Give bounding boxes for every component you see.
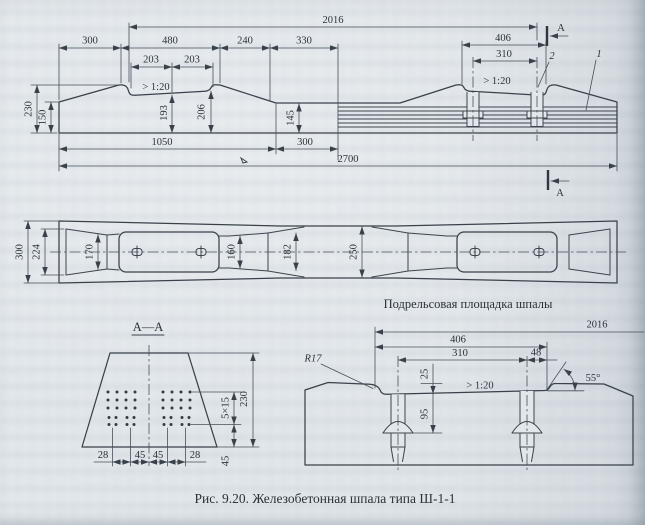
- wire-dot: [115, 416, 118, 419]
- scanned-page: 2016 300 480 240 330 203 203 > 1:20 193 …: [0, 0, 645, 525]
- dim-sec-28b: 28: [190, 450, 201, 461]
- dim-sec-45-bottom: 45: [221, 456, 232, 467]
- figure-caption: Рис. 9.20. Железобетонная шпала типа Ш-1…: [195, 491, 456, 506]
- break-tick: [241, 158, 247, 163]
- wire-dot: [116, 399, 119, 402]
- wire-dot: [107, 391, 110, 394]
- slope-label-detail: > 1:20: [466, 381, 493, 392]
- section-title: А—А: [133, 320, 164, 334]
- dowel-left: [463, 57, 483, 141]
- wire-dot: [170, 416, 173, 419]
- wire-dot: [162, 407, 165, 410]
- wire-dot: [133, 423, 136, 426]
- wire-dot: [163, 416, 166, 419]
- dim-plan-224: 224: [32, 243, 43, 260]
- wire-dot: [125, 399, 128, 402]
- plan-view: 300 224 170 160 182 250 Подрельсовая пло…: [15, 221, 627, 311]
- wire-dot: [134, 399, 137, 402]
- part-label-wire: 1: [596, 49, 601, 60]
- dim-480: 480: [162, 36, 178, 47]
- dowel-right: [527, 57, 547, 141]
- dim-203-left: 203: [143, 55, 159, 66]
- wire-dot: [125, 407, 128, 410]
- dim-406: 406: [495, 33, 511, 44]
- dim-145: 145: [286, 110, 297, 126]
- section-mark-bottom: А: [548, 170, 569, 199]
- detail-dowel-left: [383, 356, 413, 471]
- section-trapezoid: [82, 353, 217, 447]
- wire-dot: [116, 407, 119, 410]
- dim-detail-48: 48: [531, 348, 542, 359]
- dim-plan-170: 170: [85, 244, 96, 260]
- slope-label-left: > 1:20: [142, 82, 169, 93]
- wire-dot: [189, 399, 192, 402]
- detail-view: 2016 406 310 48 R17 25 95 55° > 1:20: [304, 320, 644, 472]
- wire-dot: [126, 423, 129, 426]
- dim-plan-160: 160: [227, 244, 238, 260]
- dim-sec-45a: 45: [135, 450, 146, 461]
- wire-dot: [108, 416, 111, 419]
- detail-dimensions: 2016 406 310 48 R17 25 95 55° > 1:20: [304, 320, 644, 434]
- section-a-a-view: А—А 28 45 45 28 5×15 45: [82, 320, 259, 466]
- radius-label: R17: [304, 354, 323, 365]
- dim-detail-25: 25: [420, 369, 431, 380]
- angle-label: 55°: [586, 373, 601, 384]
- wire-dot: [107, 407, 110, 410]
- dim-sec-45b: 45: [153, 450, 164, 461]
- rail-pad-note: Подрельсовая площадка шпалы: [384, 297, 553, 311]
- detail-body-hatched: [305, 383, 633, 466]
- elevation-dimensions: 2016 300 480 240 330 203 203 > 1:20 193 …: [24, 15, 618, 166]
- wire-dot: [189, 391, 192, 394]
- wire-dot: [188, 416, 191, 419]
- wire-dot: [181, 416, 184, 419]
- part-label-dowel: 2: [549, 51, 555, 62]
- wire-dot: [171, 407, 174, 410]
- dim-sec-230: 230: [239, 391, 250, 407]
- dim-230: 230: [24, 101, 35, 117]
- wire-dot: [162, 391, 165, 394]
- dim-300: 300: [82, 36, 98, 47]
- wire-dot: [180, 399, 183, 402]
- wire-dot: [163, 423, 166, 426]
- section-dimensions: 28 45 45 28 5×15 45 230: [94, 353, 259, 466]
- dim-plan-250: 250: [349, 244, 360, 260]
- wire-dot: [107, 399, 110, 402]
- detail-dowel-right: [512, 356, 542, 471]
- wire-dot: [171, 399, 174, 402]
- wire-dot: [133, 416, 136, 419]
- section-mark-top: А: [547, 23, 568, 46]
- wire-dot: [181, 423, 184, 426]
- dim-206: 206: [197, 104, 208, 120]
- dim-203-right: 203: [184, 55, 200, 66]
- part-callouts: 2 1: [538, 49, 602, 110]
- dim-detail-310: 310: [452, 348, 468, 359]
- dim-detail-2016: 2016: [587, 320, 608, 331]
- elevation-view: 2016 300 480 240 330 203 203 > 1:20 193 …: [24, 15, 618, 199]
- wire-dot: [188, 423, 191, 426]
- dim-2700: 2700: [338, 154, 359, 165]
- wire-dot: [189, 407, 192, 410]
- wire-dot: [115, 423, 118, 426]
- wire-dot: [162, 399, 165, 402]
- wire-dot: [116, 391, 119, 394]
- dim-240: 240: [237, 36, 253, 47]
- dim-330: 330: [296, 36, 312, 47]
- wire-dot: [170, 423, 173, 426]
- wire-dot: [171, 391, 174, 394]
- dim-150: 150: [38, 110, 49, 126]
- dim-310: 310: [496, 49, 512, 60]
- wire-dot: [134, 407, 137, 410]
- dim-wire-grid: 5×15: [221, 397, 232, 419]
- figure-9-20: 2016 300 480 240 330 203 203 > 1:20 193 …: [0, 0, 645, 525]
- dim-plan-300: 300: [15, 244, 26, 260]
- wire-dot: [125, 391, 128, 394]
- dim-1050: 1050: [152, 137, 173, 148]
- wire-dot: [180, 407, 183, 410]
- dim-plan-182: 182: [283, 244, 294, 260]
- wire-dot: [108, 423, 111, 426]
- dim-detail-406: 406: [450, 335, 466, 346]
- dim-span-2016: 2016: [323, 15, 344, 26]
- dim-193: 193: [159, 105, 170, 121]
- slope-label-right: > 1:20: [483, 76, 510, 87]
- dim-300-bottom: 300: [297, 137, 313, 148]
- section-mark-bottom-label: А: [556, 188, 564, 199]
- dim-detail-95: 95: [420, 409, 431, 420]
- section-mark-top-label: А: [557, 23, 565, 34]
- wire-dot: [126, 416, 129, 419]
- dim-sec-28a: 28: [98, 450, 109, 461]
- wire-dot: [180, 391, 183, 394]
- wire-dot: [134, 391, 137, 394]
